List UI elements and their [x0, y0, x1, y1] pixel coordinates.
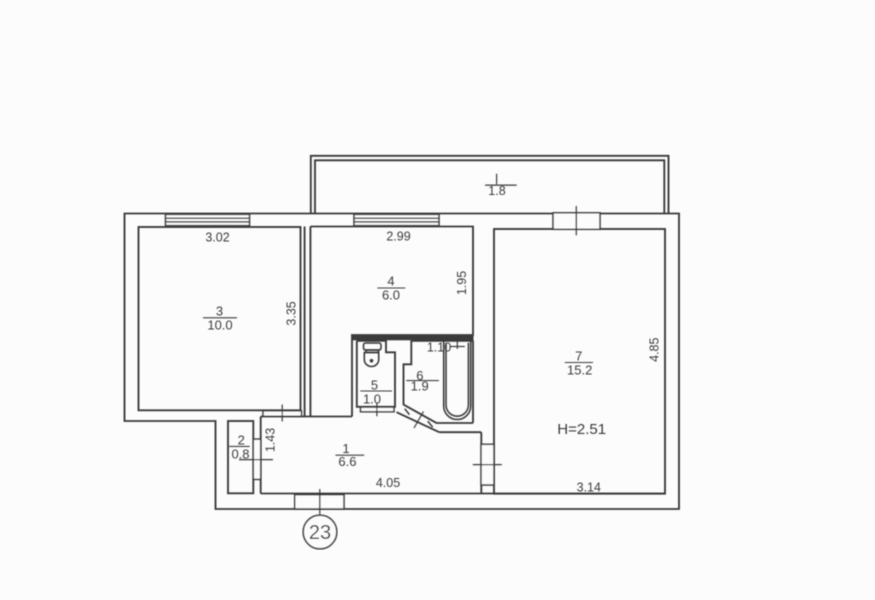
- svg-text:H=2.51: H=2.51: [557, 421, 606, 438]
- svg-text:3.02: 3.02: [205, 231, 229, 245]
- svg-text:15.2: 15.2: [567, 362, 592, 377]
- svg-text:1.10: 1.10: [427, 341, 451, 355]
- svg-text:1.43: 1.43: [264, 428, 278, 452]
- svg-text:6.0: 6.0: [382, 288, 400, 303]
- svg-text:2.99: 2.99: [386, 230, 410, 244]
- svg-text:3.35: 3.35: [285, 301, 299, 325]
- svg-text:6.6: 6.6: [338, 454, 356, 469]
- svg-text:1.9: 1.9: [411, 379, 429, 394]
- svg-text:1.0: 1.0: [363, 392, 381, 407]
- svg-text:3: 3: [216, 304, 223, 319]
- svg-text:1.95: 1.95: [455, 271, 469, 295]
- svg-text:0.8: 0.8: [231, 447, 249, 462]
- svg-text:2: 2: [238, 433, 245, 448]
- svg-text:10.0: 10.0: [207, 318, 232, 333]
- svg-text:5: 5: [371, 378, 378, 393]
- svg-text:7: 7: [575, 349, 582, 364]
- svg-text:4.85: 4.85: [648, 337, 662, 361]
- svg-text:4.05: 4.05: [376, 476, 400, 490]
- svg-text:23: 23: [309, 522, 331, 544]
- svg-text:4: 4: [387, 274, 394, 289]
- svg-text:3.14: 3.14: [577, 481, 601, 495]
- svg-text:1.8: 1.8: [488, 184, 505, 198]
